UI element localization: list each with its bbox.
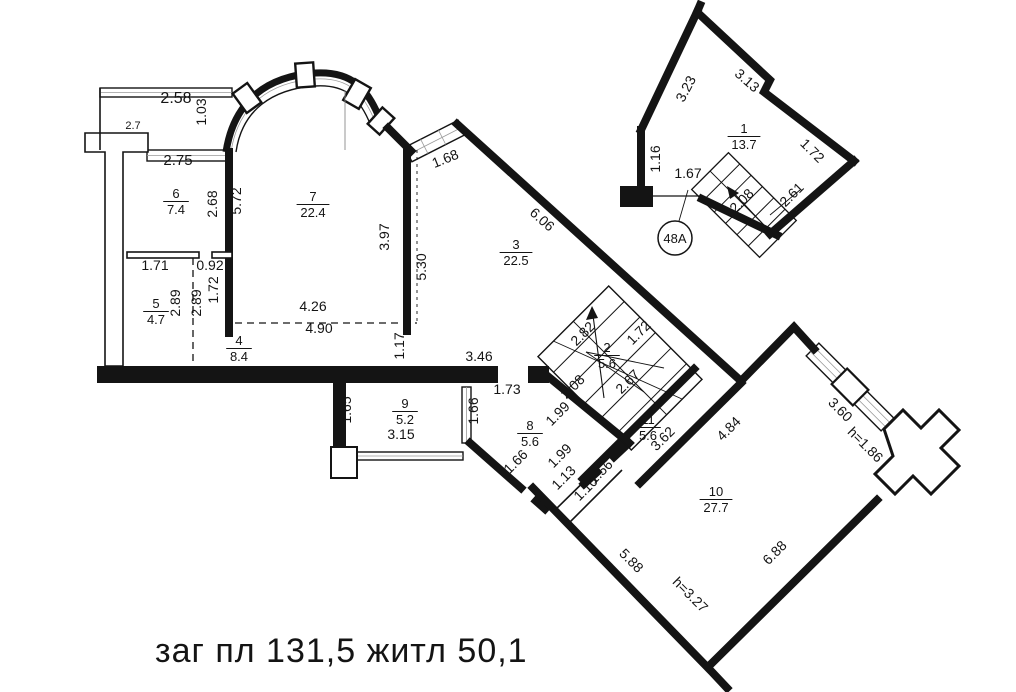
dimension-label: 1.72	[623, 317, 654, 348]
dimension-label: 0.92	[196, 257, 223, 273]
room-label: 25.6	[594, 340, 620, 371]
room-number: 2	[603, 340, 610, 355]
room-number: 9	[401, 396, 408, 411]
dimension-label: 1.66	[465, 397, 481, 424]
total-area-text: заг пл 131,5 житл 50,1	[155, 632, 528, 670]
dimension-label: 1.03	[193, 98, 209, 125]
room-area: 5.6	[598, 356, 616, 371]
porch-pillar	[331, 447, 357, 478]
room-label: 115.6	[635, 412, 661, 443]
room-number: 5	[152, 296, 159, 311]
dimension-label: 3.46	[465, 348, 492, 364]
dimension-label: 2.68	[204, 190, 220, 217]
room-label: 722.4	[297, 189, 330, 220]
room-number: 6	[172, 186, 179, 201]
room-number: 8	[526, 418, 533, 433]
dimension-label: 4.90	[305, 320, 332, 336]
room-number: 3	[512, 237, 519, 252]
room-label: 67.4	[163, 186, 189, 217]
bay-window-arc	[226, 62, 394, 152]
dimension-label: 2.58	[160, 90, 191, 107]
dimension-label: 2.08	[557, 371, 588, 402]
room-number: 4	[235, 333, 242, 348]
dimension-label: 1.67	[674, 165, 701, 181]
room-area: 22.5	[503, 253, 528, 268]
dimension-label: 5.88	[616, 545, 647, 576]
room-area: 4.7	[147, 312, 165, 327]
dimension-label: 1.16	[647, 145, 663, 172]
dimension-label: 5.30	[413, 253, 429, 280]
room-label: 48.4	[226, 333, 252, 364]
room-area: 27.7	[703, 500, 728, 515]
room-label: 1027.7	[700, 484, 733, 515]
room-area: 5.6	[521, 434, 539, 449]
dimension-label: 2.89	[188, 289, 204, 316]
dimension-label: 5.72	[228, 187, 244, 214]
room-area: 13.7	[731, 137, 756, 152]
t-pillar	[85, 133, 148, 366]
dimension-label: 3.97	[376, 223, 392, 250]
dimension-label: 2.75	[163, 152, 192, 169]
stair-arrow	[592, 308, 604, 398]
floor-plan-page: 48А 2.582.71.032.752.685.723.971.710.921…	[0, 0, 1016, 692]
dimension-label: 2.7	[125, 120, 140, 132]
dimension-label: h=3.27	[670, 574, 712, 616]
unit-badge-label: 48А	[663, 231, 686, 246]
room-number: 10	[709, 484, 723, 499]
dimension-label: 1.17	[391, 332, 407, 359]
floor-plan-canvas: 48А 2.582.71.032.752.685.723.971.710.921…	[0, 0, 1016, 692]
unit-badge: 48А	[658, 190, 692, 255]
room-label: 113.7	[728, 121, 761, 152]
room-number: 1	[740, 121, 747, 136]
dimension-label: 2.89	[167, 289, 183, 316]
dimension-label: 1.99	[542, 398, 573, 429]
dimension-label: 3.15	[387, 426, 414, 442]
room-area: 5.2	[396, 412, 414, 427]
room-area: 7.4	[167, 202, 185, 217]
room-label: 54.7	[143, 296, 169, 327]
dimension-label: 4.26	[299, 298, 326, 314]
dimension-label: 3.23	[672, 73, 699, 105]
room-area: 5.6	[639, 428, 657, 443]
dimension-label: 1.72	[205, 276, 221, 303]
room-area: 8.4	[230, 349, 248, 364]
room-number: 7	[309, 189, 316, 204]
room-area: 22.4	[300, 205, 325, 220]
walls-thick	[229, 5, 877, 688]
window-strips	[100, 88, 895, 460]
stairs-main	[538, 286, 702, 450]
room-label: 322.5	[500, 237, 533, 268]
dimension-label: 1.65	[338, 396, 354, 423]
dimension-label: 1.71	[141, 257, 168, 273]
room-number: 11	[641, 412, 655, 427]
room-label: 95.2	[392, 396, 418, 427]
dimension-label: 6.88	[759, 537, 790, 568]
dimension-label: 4.84	[713, 413, 744, 444]
room-label: 85.6	[517, 418, 543, 449]
dimension-label: 1.73	[493, 381, 520, 397]
